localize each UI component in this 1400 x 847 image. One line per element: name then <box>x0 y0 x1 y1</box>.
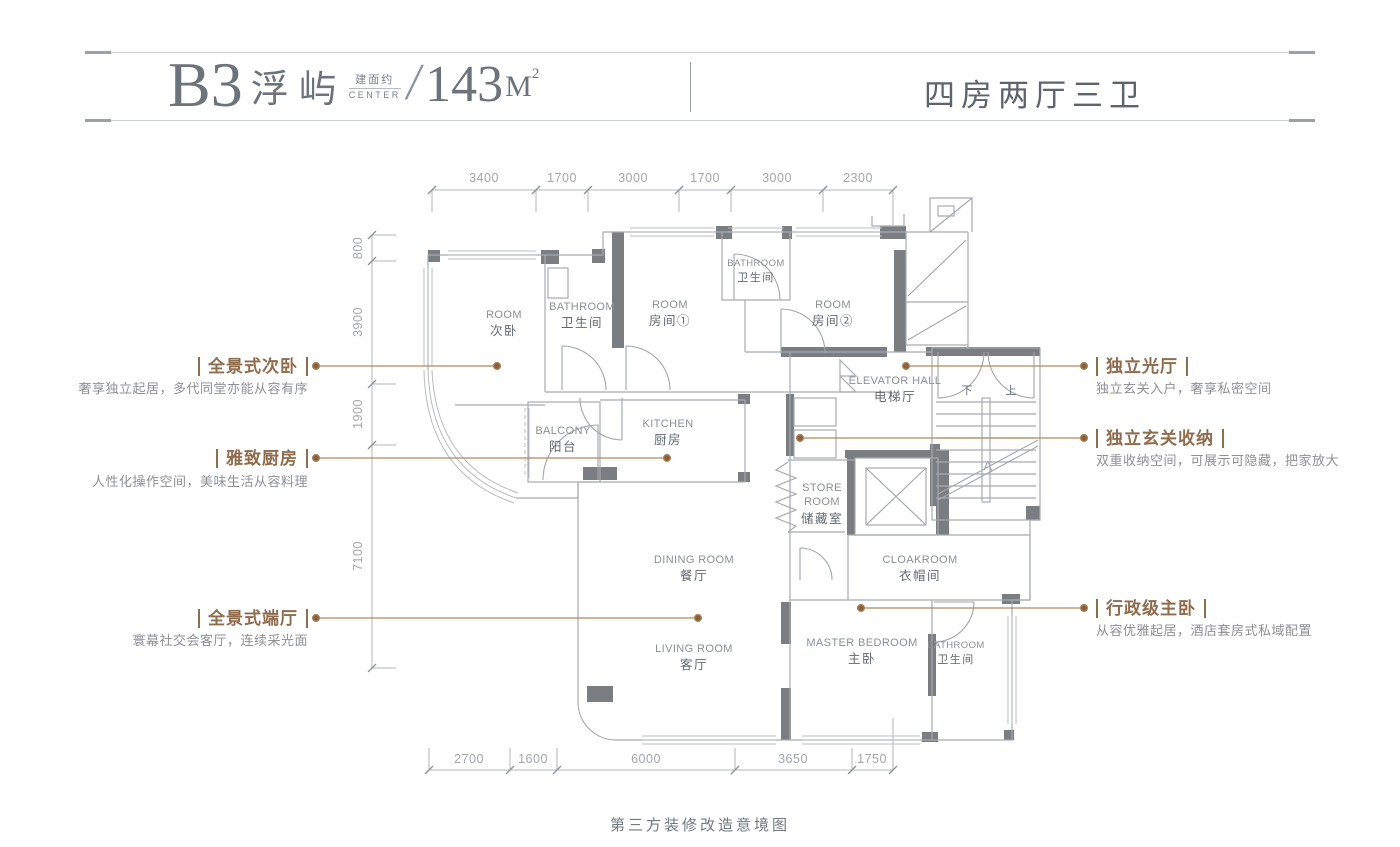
unit-name: 浮屿 <box>251 58 347 113</box>
room-label-elevator-hall: ELEVATOR HALL电梯厅 <box>840 374 950 406</box>
room-label-kitchen: KITCHEN厨房 <box>642 417 693 449</box>
unit-code: B3 <box>168 53 243 117</box>
stair-up-label: 上 <box>1006 382 1017 398</box>
callout-living-hall-subtitle: 寰幕社交会客厅，连续采光面 <box>18 634 308 647</box>
floorplan-page: B3 浮屿 建面约 CENTER / 143 M2 四房两厅三卫 <box>0 0 1400 847</box>
dimension-ticks <box>368 186 897 774</box>
callout-light-hall-subtitle: 独立玄关入户，奢享私密空间 <box>1096 382 1396 395</box>
room-label-secondary-bedroom: ROOM次卧 <box>486 308 522 340</box>
rule-endcap <box>1289 51 1315 54</box>
room-label-room-1: ROOM房间① <box>649 298 691 330</box>
area-brand-block: 建面约 CENTER <box>349 71 401 100</box>
room-label-room-2: ROOM房间② <box>812 298 854 330</box>
room-label-cloakroom: CLOAKROOM衣帽间 <box>865 553 975 585</box>
room-label-bathroom-1: BATHROOM卫生间 <box>542 300 622 332</box>
room-label-balcony: BALCONY阳台 <box>535 424 590 456</box>
dim-bottom-4: 3650 <box>778 752 808 766</box>
callout-kitchen-title: 雅致厨房 <box>18 449 308 468</box>
room-label-bathroom-3: BATHROOM卫生间 <box>920 640 992 668</box>
floor-plan-drawing <box>0 0 1400 847</box>
dimension-lines <box>372 190 893 770</box>
dim-left-3: 1900 <box>351 399 365 429</box>
brand-label: CENTER <box>349 88 401 100</box>
dim-top-3: 3000 <box>618 171 648 185</box>
room-label-bathroom-2: BATHROOM卫生间 <box>721 258 791 286</box>
room-label-living-room: LIVING ROOM客厅 <box>639 642 749 674</box>
disclaimer-caption: 第三方装修改造意境图 <box>610 814 790 835</box>
dim-bottom-2: 1600 <box>518 752 548 766</box>
callout-living-hall-title: 全景式端厅 <box>18 609 308 628</box>
rule-endcap <box>85 51 111 54</box>
area-number: 143 <box>425 59 503 111</box>
callout-light-hall-title: 独立光厅 <box>1096 357 1396 376</box>
header-bottom-rule <box>85 120 1315 121</box>
dim-top-1: 3400 <box>469 171 499 185</box>
slash-divider: / <box>403 53 426 112</box>
room-label-master-bedroom: MASTER BEDROOM主卧 <box>797 636 927 668</box>
dim-left-2: 3900 <box>351 307 365 337</box>
callout-kitchen-subtitle: 人性化操作空间，美味生活从容料理 <box>18 475 308 488</box>
stair-down-label: 下 <box>962 382 973 398</box>
callout-entry-storage-subtitle: 双重收纳空间，可展示可隐藏，把家放大 <box>1096 454 1396 467</box>
callout-entry-storage-title: 独立玄关收纳 <box>1096 429 1396 448</box>
callout-master-bedroom-title: 行政级主卧 <box>1096 599 1396 618</box>
unit-title: B3 浮屿 建面约 CENTER / 143 M2 <box>168 50 539 120</box>
room-label-dining-room: DINING ROOM餐厅 <box>639 553 749 585</box>
callout-master-bedroom-subtitle: 从容优雅起居，酒店套房式私域配置 <box>1096 624 1396 637</box>
area-label: 建面约 <box>349 71 401 87</box>
area-unit: M2 <box>505 66 539 104</box>
rule-endcap <box>1289 119 1315 122</box>
dim-top-6: 2300 <box>843 171 873 185</box>
area-exponent: 2 <box>532 66 540 82</box>
header-divider <box>690 62 691 112</box>
dim-top-2: 1700 <box>547 171 577 185</box>
dim-bottom-1: 2700 <box>454 752 484 766</box>
dim-bottom-5: 1750 <box>857 752 887 766</box>
room-label-store-room: STORE ROOM储藏室 <box>793 481 851 527</box>
dim-left-1: 800 <box>351 237 365 259</box>
rule-endcap <box>85 119 111 122</box>
dim-left-4: 7100 <box>351 541 365 571</box>
dim-top-5: 3000 <box>762 171 792 185</box>
callout-secondary-bedroom-title: 全景式次卧 <box>18 357 308 376</box>
dim-top-4: 1700 <box>690 171 720 185</box>
callout-secondary-bedroom-subtitle: 奢享独立起居，多代同堂亦能从容有序 <box>18 382 308 395</box>
rooms-summary: 四房两厅三卫 <box>850 70 1220 115</box>
dim-bottom-3: 6000 <box>631 752 661 766</box>
